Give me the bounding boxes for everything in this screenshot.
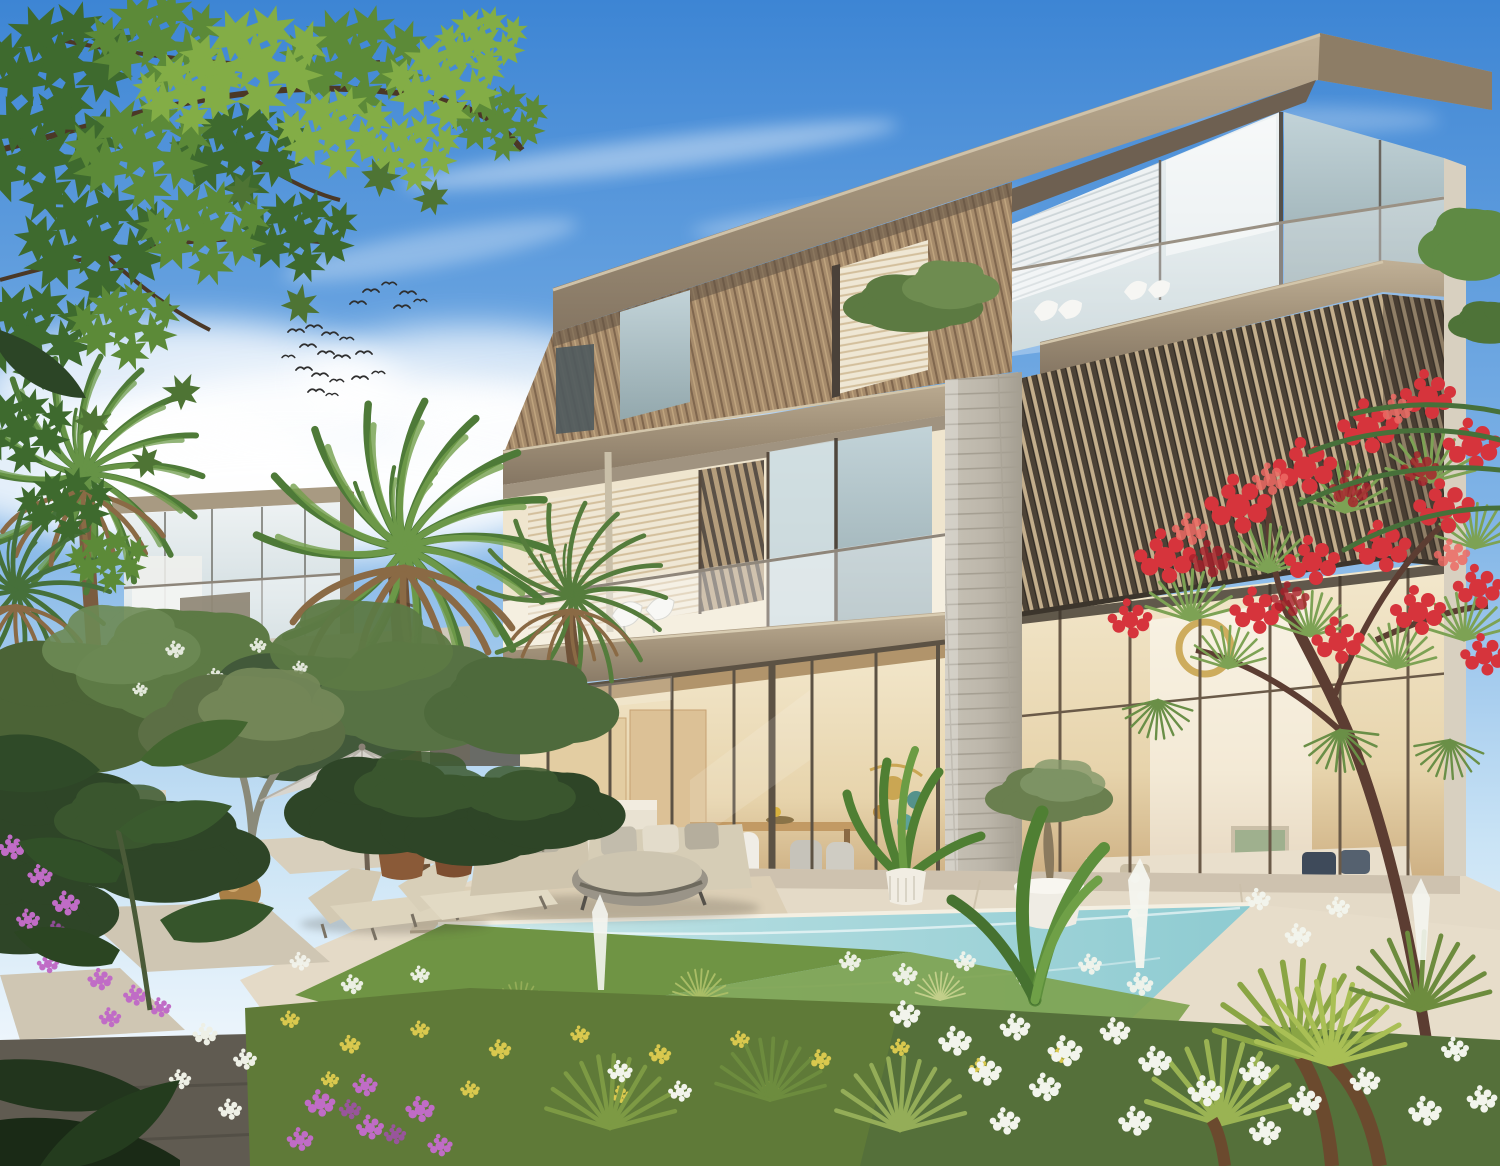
stone-column bbox=[945, 372, 1022, 906]
upper-window-1 bbox=[620, 290, 690, 420]
upper-window-small bbox=[556, 344, 594, 434]
villa-render bbox=[0, 0, 1500, 1166]
